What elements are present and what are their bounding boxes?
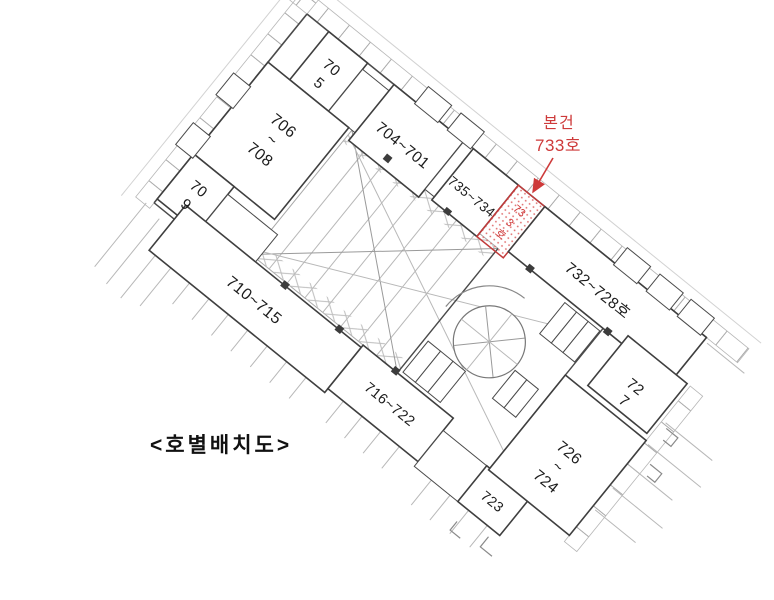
subject-annotation: 본건 733호 <box>533 114 581 192</box>
building-rotated-group: 70 5 704~701 735~734 73 3 호 732~728호 706… <box>69 0 774 600</box>
plan-caption: <호별배치도> <box>150 434 292 457</box>
annotation-line1: 본건 <box>543 114 574 132</box>
annotation-line2: 733호 <box>535 136 581 155</box>
floor-plan-page: 70 5 704~701 735~734 73 3 호 732~728호 706… <box>0 0 774 600</box>
floor-plan-drawing: 70 5 704~701 735~734 73 3 호 732~728호 706… <box>0 0 774 600</box>
